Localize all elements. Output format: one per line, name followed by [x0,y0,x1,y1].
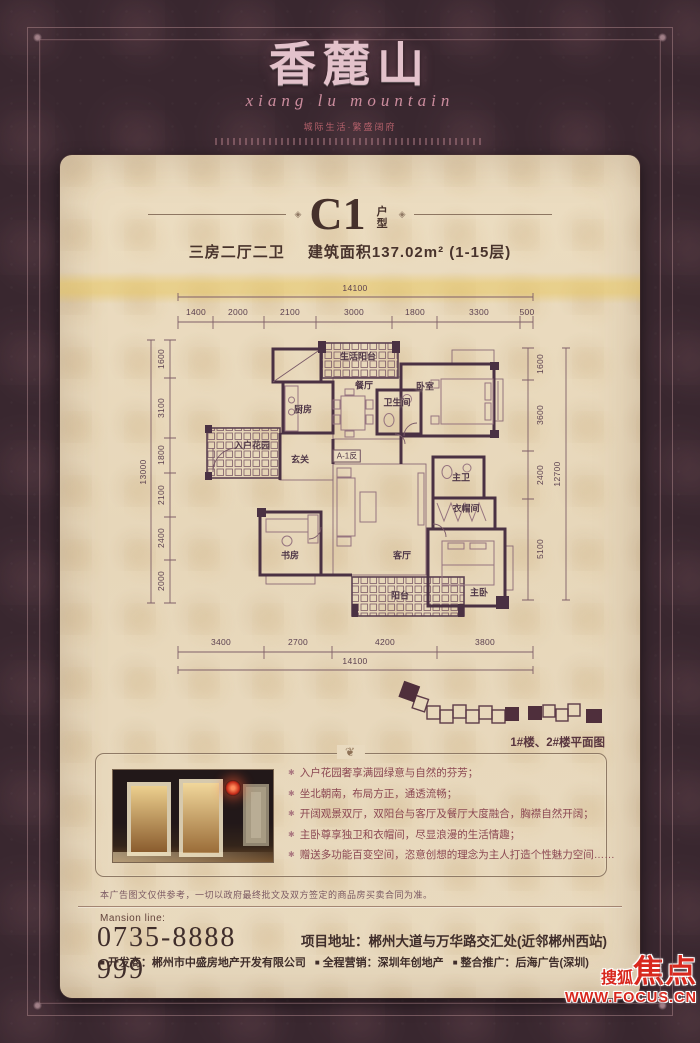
room-label-study: 书房 [281,552,299,561]
room-label-bathroom: 卫生间 [383,399,410,408]
dim-top-seg: 3300 [469,308,489,317]
keyplan-caption: 1#楼、2#楼平面图 [420,734,605,750]
dim-bottom-seg: 3400 [211,638,231,647]
flyer-page: 香麓山 xiang lu mountain 城际生活·繁盛阔府 ◈ C1 户型 … [0,0,700,1043]
unit-tag-label: A-1反 [333,450,361,463]
dim-right-seg: 2400 [536,465,545,485]
dim-right-seg: 1600 [536,354,545,374]
focus-logo-text: 焦点 [633,956,697,987]
corner-ornament [658,1001,667,1010]
room-label-cloakroom: 衣帽间 [452,505,479,514]
dim-bottom-total: 14100 [342,657,367,666]
credits-row: 开发商：郴州市中盛房地产开发有限公司 全程营销：深圳年创地产 整合推广：后海广告… [100,954,610,970]
room-label-foyer: 玄关 [291,456,309,465]
photo-door-right [243,784,269,846]
room-label-master-bath: 主卫 [452,474,470,483]
dim-top-seg: 2100 [280,308,300,317]
room-label-entry-garden: 入户花园 [234,442,270,451]
corner-ornament [33,33,42,42]
dim-top-seg: 2000 [228,308,248,317]
photo-wall-lamp [225,780,241,796]
disclaimer-text: 本广告图文仅供参考，一切以政府最终批文及双方签定的商品房买卖合同为准。 [100,888,433,901]
room-label-master-bedroom: 主卧 [470,589,488,598]
dim-left-total: 13000 [139,459,148,484]
dim-left-seg: 2000 [157,571,166,591]
sohu-focus-logo: 搜狐 焦点 [565,956,697,987]
interior-photo [113,770,273,862]
feature-bullet: 开阔观景双厅，双阳台与客厅及餐厅大度融合，胸襟自然开阔； [288,804,615,825]
photo-doorway-left [127,782,171,856]
room-label-kitchen: 厨房 [294,406,312,415]
credit-marketing: 全程营销：深圳年创地产 [315,954,444,970]
dim-right-seg: 3600 [536,405,545,425]
room-label-balcony: 阳台 [391,592,409,601]
room-label-living-balcony: 生活阳台 [340,353,376,362]
project-address: 项目地址：郴州大道与万华路交汇处(近邻郴州西站) [301,930,607,950]
dim-bottom-seg: 4200 [375,638,395,647]
features-box: ❦ 入户花园奢享满园绿意与自然的芬芳； 坐北朝南，布局方正，通透流畅； 开阔观景… [95,753,607,877]
room-label-dining: 餐厅 [355,382,373,391]
dim-left-seg: 2400 [157,528,166,548]
sohu-logo-text: 搜狐 [601,971,633,987]
photo-floor-glow [113,852,273,862]
dim-top-seg: 1400 [186,308,206,317]
feature-bullet: 赠送多功能百变空间，恣意创想的理念为主人打造个性魅力空间…… [288,845,615,866]
dim-left-seg: 1800 [157,445,166,465]
room-label-bedroom: 卧室 [416,383,434,392]
dim-top-seg: 1800 [405,308,425,317]
credit-developer: 开发商：郴州市中盛房地产开发有限公司 [100,954,306,970]
dim-top-total: 14100 [342,284,367,293]
dim-left-seg: 3100 [157,398,166,418]
dim-right-seg: 5100 [536,539,545,559]
feature-bullet-list: 入户花园奢享满园绿意与自然的芬芳； 坐北朝南，布局方正，通透流畅； 开阔观景双厅… [288,763,615,866]
dim-bottom-seg: 3800 [475,638,495,647]
feature-bullet: 坐北朝南，布局方正，通透流畅； [288,784,615,805]
dim-bottom-seg: 2700 [288,638,308,647]
corner-ornament [658,33,667,42]
divider-line [78,906,622,907]
dim-right-total: 12700 [553,461,562,486]
corner-ornament [33,1001,42,1010]
floorplan-drawing [0,0,700,1043]
dim-left-seg: 1600 [157,349,166,369]
feature-bullet: 入户花园奢享满园绿意与自然的芬芳； [288,763,615,784]
focus-url: WWW.FOCUS.CN [565,991,697,1006]
feature-bullet: 主卧尊享独卫和衣帽间，尽显浪漫的生活情趣； [288,825,615,846]
dim-top-seg: 500 [519,308,534,317]
sohu-focus-watermark: 搜狐 焦点 WWW.FOCUS.CN [565,956,697,1006]
flourish-icon: ❦ [337,745,365,759]
room-label-living-room: 客厅 [393,552,411,561]
photo-doorway-center [179,779,223,857]
dim-top-seg: 3000 [344,308,364,317]
dim-left-seg: 2100 [157,485,166,505]
